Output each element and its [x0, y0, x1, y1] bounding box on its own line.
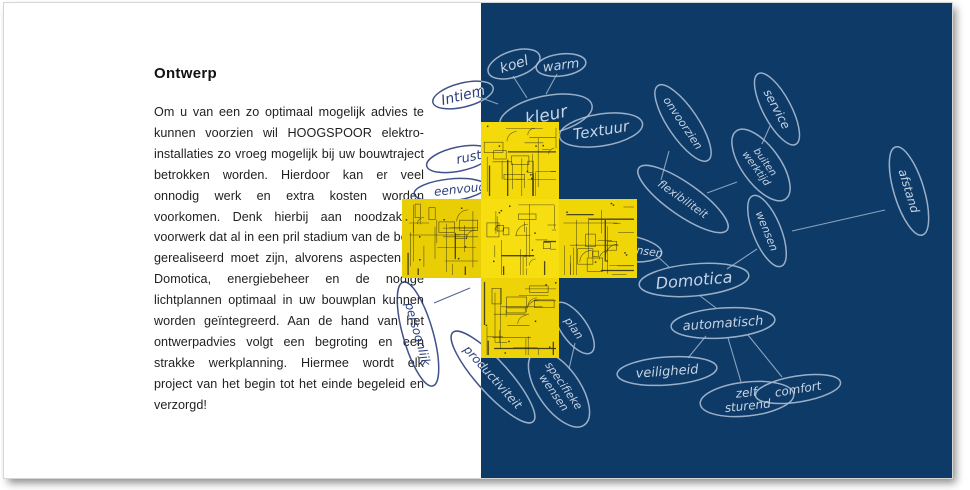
mindmap-node-automatisch: automatisch — [670, 304, 776, 341]
svg-text:eenvoud: eenvoud — [433, 179, 487, 198]
mindmap-link — [728, 338, 741, 382]
mindmap-node-domotica: Domotica — [638, 259, 750, 300]
svg-text:specifiekewensen: specifiekewensen — [532, 359, 585, 419]
svg-text:zelfsturend: zelfsturend — [723, 383, 772, 415]
brochure-canvas: Ontwerp Om u van een zo optimaal mogelij… — [0, 0, 970, 490]
mindmap-link — [792, 210, 885, 231]
blueprint-tile — [481, 122, 559, 199]
mindmap-node-wensen: wensen — [740, 191, 794, 272]
mindmap-and-blueprint-overlay: IntiemkoelwarmkleurTextuuronvoorzienserv… — [4, 3, 952, 478]
blueprint-cross — [402, 122, 637, 358]
mindmap-node-onvoorzien: onvoorzien — [645, 77, 720, 168]
mindmap-link — [513, 76, 527, 98]
svg-text:service: service — [761, 87, 794, 132]
mindmap-link — [748, 335, 782, 377]
blueprint-tile — [559, 199, 637, 278]
svg-text:Intiem: Intiem — [440, 83, 487, 109]
mindmap-link — [661, 151, 669, 180]
svg-text:veiligheid: veiligheid — [635, 362, 700, 381]
mindmap-node-persoonlijk: persoonlijk — [389, 278, 448, 390]
mindmap-node-zelf-sturend: zelfsturend — [698, 377, 795, 421]
mindmap-link — [707, 182, 737, 193]
blueprint-tile — [402, 199, 481, 278]
blueprint-tile — [481, 278, 559, 358]
mindmap-node-veiligheid: veiligheid — [616, 354, 718, 389]
svg-text:persoonlijk: persoonlijk — [402, 300, 434, 369]
svg-text:comfort: comfort — [774, 378, 824, 399]
mindmap-node-buiten-werktijd: buitenwerktijd — [721, 120, 801, 210]
svg-text:Domotica: Domotica — [655, 267, 733, 293]
mindmap-link — [688, 336, 706, 358]
svg-text:flexibiliteit: flexibiliteit — [655, 177, 711, 221]
svg-text:buitenwerktijd: buitenwerktijd — [740, 143, 782, 189]
brochure-page: Ontwerp Om u van een zo optimaal mogelij… — [3, 2, 953, 479]
mindmap-link — [434, 288, 470, 303]
mindmap-node-flexibiliteit: flexibiliteit — [630, 155, 737, 243]
mindmap-node-textuur: Textuur — [557, 108, 645, 153]
svg-text:automatisch: automatisch — [682, 314, 764, 335]
svg-text:wensen: wensen — [753, 209, 781, 253]
blueprint-tile — [481, 199, 559, 278]
mindmap-link — [699, 295, 716, 308]
mindmap-node-afstand: afstand — [881, 143, 937, 240]
mindmap-node-service: service — [746, 67, 808, 151]
svg-text:onvoorzien: onvoorzien — [660, 94, 705, 152]
mindmap-node-warm: warm — [535, 51, 587, 79]
